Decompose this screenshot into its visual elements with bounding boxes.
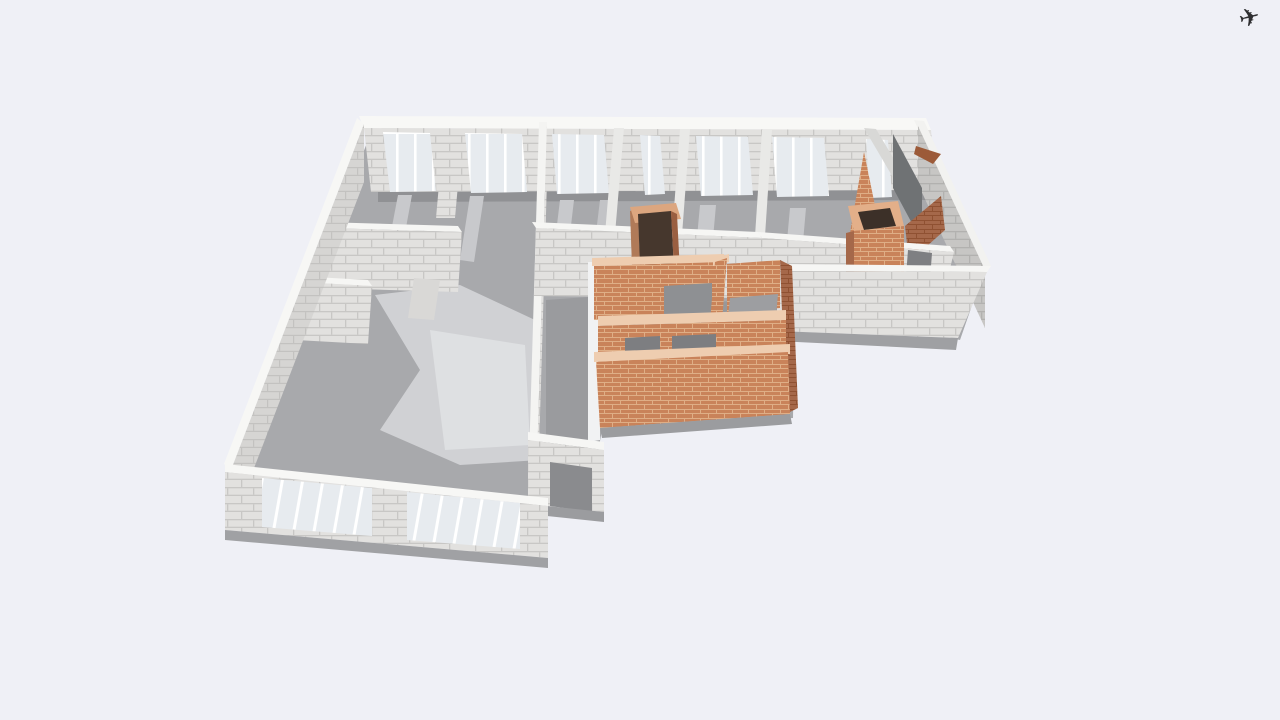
viewport-3d[interactable] bbox=[0, 0, 1280, 720]
back-wall-top bbox=[359, 116, 931, 130]
back-window bbox=[383, 132, 436, 192]
floor-dark-center-front bbox=[546, 297, 588, 456]
back-window bbox=[465, 133, 527, 193]
airplane-icon: ✈ bbox=[1235, 0, 1263, 36]
front-window bbox=[262, 478, 372, 536]
back-window bbox=[772, 137, 829, 197]
house-model bbox=[224, 116, 991, 568]
center-front-doorway bbox=[550, 462, 592, 512]
fly-mode-button[interactable]: ✈ bbox=[1232, 2, 1266, 34]
app-window: ✈ bbox=[0, 0, 1280, 720]
floor-bright-left-wing bbox=[430, 330, 530, 450]
back-window bbox=[552, 134, 609, 194]
front-right-wall-face bbox=[777, 271, 987, 338]
back-window bbox=[696, 136, 753, 196]
chimney-right-hollow bbox=[858, 208, 896, 230]
